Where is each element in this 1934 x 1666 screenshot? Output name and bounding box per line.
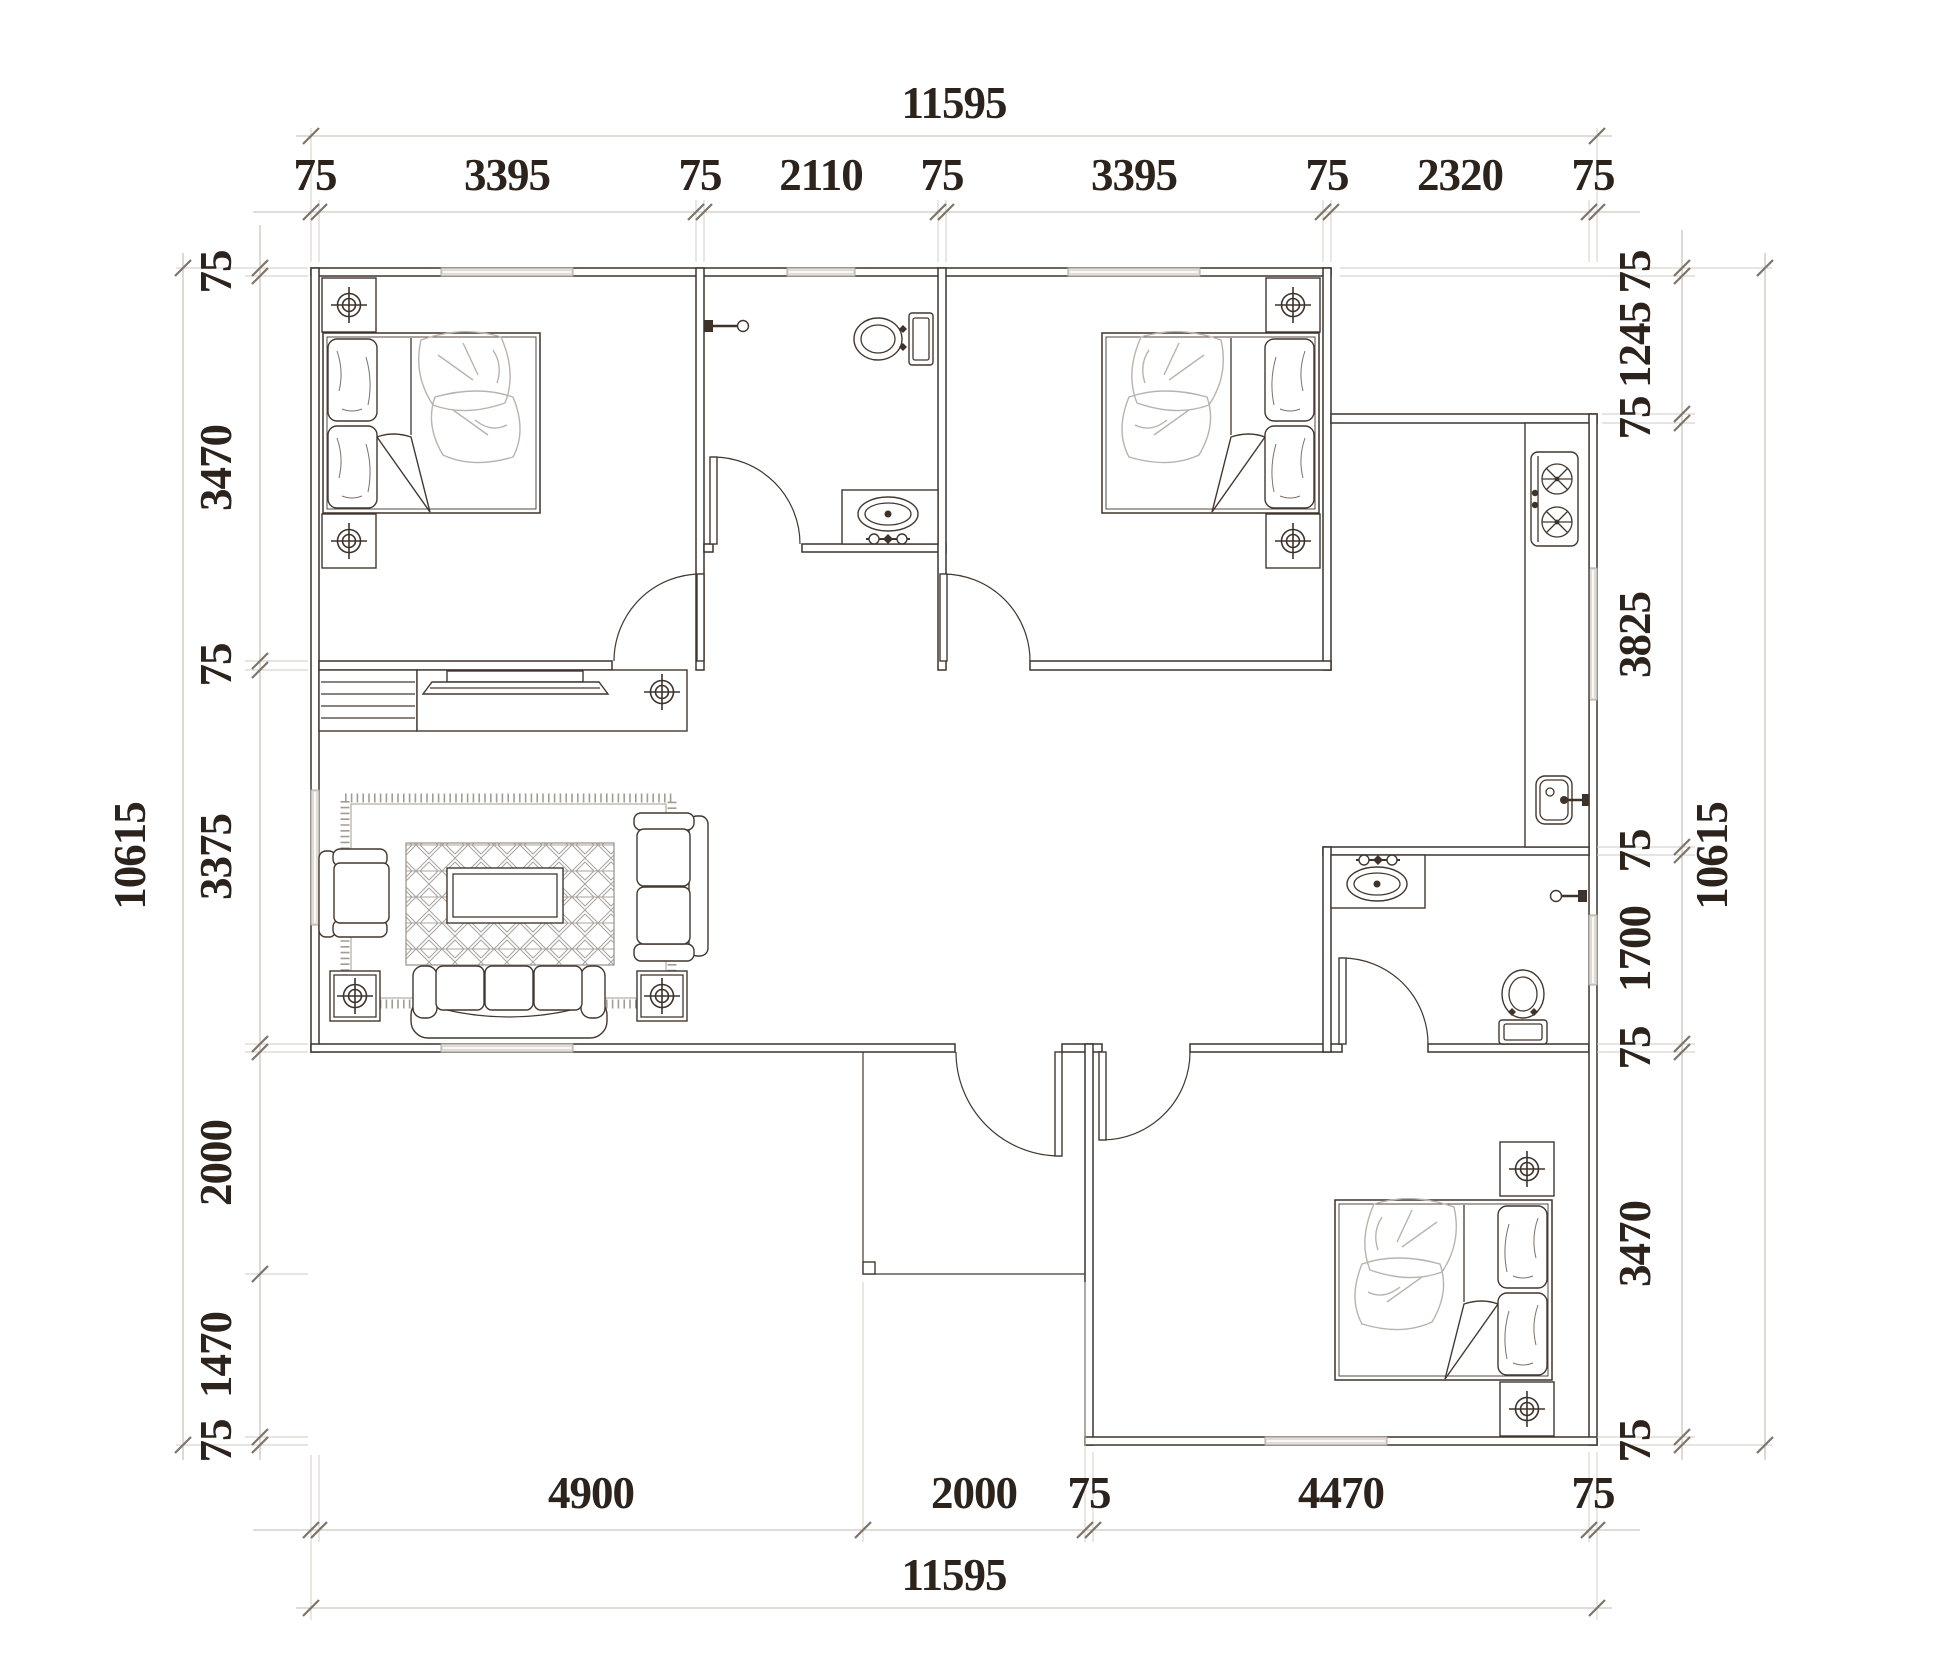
tv-cabinet <box>417 670 687 731</box>
armchair-icon <box>319 849 389 937</box>
nightstand-icon <box>1500 1142 1554 1196</box>
wall-bedroom2-bottom <box>1030 661 1331 670</box>
door-bedroom3 <box>1099 1052 1190 1140</box>
door-bath1 <box>710 457 800 544</box>
dim-right-seg: 75 <box>1610 251 1660 294</box>
dim-top-seg: 75 <box>1306 150 1349 200</box>
dim-left-seg: 1470 <box>191 1312 241 1398</box>
coffee-table <box>447 868 563 923</box>
wall-left <box>311 268 319 1052</box>
wall-bath2-top <box>1323 847 1589 855</box>
dim-left-seg: 2000 <box>191 1120 241 1206</box>
wall-entry-stub <box>1062 1044 1102 1052</box>
wall-kitchen-top <box>1331 414 1597 423</box>
bedroom-top-left <box>322 278 540 568</box>
window-bath1 <box>787 268 855 276</box>
dim-right-seg: 75 <box>1610 397 1660 440</box>
dim-left-seg: 75 <box>191 251 241 294</box>
bathroom-right <box>1331 855 1587 1044</box>
kitchen <box>1525 423 1589 847</box>
dim-left-seg: 75 <box>191 644 241 687</box>
dim-left-seg: 75 <box>191 1420 241 1463</box>
living-room <box>319 670 708 1038</box>
louver-cabinet <box>319 670 417 731</box>
vanity-sink-icon <box>1331 855 1425 908</box>
double-bed-icon <box>1102 332 1319 513</box>
entry-porch <box>863 1052 1085 1274</box>
wall-bedroom2-right <box>1323 268 1331 670</box>
nightstand-icon <box>322 514 376 568</box>
bedroom-top-right <box>1102 278 1320 568</box>
bathroom-top <box>704 313 938 544</box>
dim-top-seg: 2110 <box>779 150 863 200</box>
tv-icon <box>423 671 608 694</box>
dim-right-overall: 10615 <box>1687 802 1737 910</box>
dim-right-seg: 3470 <box>1610 1201 1660 1287</box>
door-bedroom1 <box>614 574 704 661</box>
floor-plan-canvas: 11595 75 3395 75 2110 75 3395 75 2320 75… <box>0 0 1934 1666</box>
towel-bar-icon <box>1551 890 1588 902</box>
dim-top-seg: 75 <box>294 150 337 200</box>
wall-hall-bed3 <box>1190 1044 1342 1052</box>
nightstand-icon <box>1266 514 1320 568</box>
gas-stove-icon <box>1531 452 1578 546</box>
dimension-top: 11595 75 3395 75 2110 75 3395 75 2320 75 <box>253 78 1640 262</box>
dim-left-seg: 3375 <box>191 814 241 900</box>
wall-bath1-bottom <box>802 544 946 552</box>
dim-bottom-seg: 75 <box>1572 1468 1615 1518</box>
dim-right-seg: 1700 <box>1610 906 1660 992</box>
dim-bottom-overall: 11595 <box>901 1550 1006 1600</box>
window-living-left <box>311 790 319 925</box>
wall-bath2-bottom <box>1428 1044 1589 1052</box>
dim-right-seg: 75 <box>1610 1027 1660 1070</box>
dim-top-seg: 3395 <box>464 150 550 200</box>
window-bedroom1 <box>441 268 573 276</box>
window-living-bottom <box>441 1044 573 1052</box>
dim-top-seg: 75 <box>921 150 964 200</box>
dim-right-seg: 1245 <box>1610 302 1660 388</box>
door-entry <box>956 1052 1062 1156</box>
door-bath2 <box>1339 958 1428 1044</box>
vanity-sink-icon <box>842 490 938 544</box>
window-bedroom3 <box>1265 1437 1387 1445</box>
dim-right-seg: 75 <box>1610 1420 1660 1463</box>
dim-top-seg: 3395 <box>1091 150 1177 200</box>
dim-top-seg: 2320 <box>1417 150 1503 200</box>
window-bedroom2 <box>1068 268 1200 276</box>
dim-right-seg: 3825 <box>1610 592 1660 678</box>
dim-bottom-seg: 4900 <box>548 1468 634 1518</box>
dimension-left: 10615 75 3470 75 3375 2000 1470 75 <box>105 225 308 1463</box>
dim-left-overall: 10615 <box>105 802 155 910</box>
side-table-icon <box>637 971 687 1021</box>
window-bath2 <box>1589 915 1597 985</box>
loveseat-icon <box>634 813 708 961</box>
dim-bottom-seg: 2000 <box>931 1468 1017 1518</box>
dim-top-seg: 75 <box>679 150 722 200</box>
toilet-icon <box>1499 970 1547 1044</box>
shower-valve-icon <box>704 320 749 332</box>
dim-left-seg: 3470 <box>191 425 241 511</box>
dim-top-seg: 75 <box>1572 150 1615 200</box>
dim-right-seg: 75 <box>1610 830 1660 873</box>
dim-bottom-seg: 75 <box>1068 1468 1111 1518</box>
wall-bedroom3-left <box>1085 1044 1093 1445</box>
bedroom-bottom-right <box>1335 1142 1554 1436</box>
toilet-icon <box>854 313 933 365</box>
wall-bath2-left <box>1323 847 1331 1052</box>
door-bedroom2 <box>940 574 1030 661</box>
floor-plan-page: 11595 75 3395 75 2110 75 3395 75 2320 75… <box>0 0 1934 1666</box>
sofa-icon <box>411 966 607 1038</box>
wall-living-bottom <box>311 1044 955 1052</box>
dim-top-overall: 11595 <box>901 78 1006 128</box>
porch-corner-post <box>863 1262 875 1274</box>
double-bed-icon <box>1335 1199 1552 1380</box>
nightstand-icon <box>1500 1382 1554 1436</box>
wall-bath1-stub <box>704 544 713 552</box>
side-table-icon <box>330 971 380 1021</box>
window-kitchen <box>1589 568 1597 700</box>
nightstand-icon <box>1266 278 1320 332</box>
wall-bedroom1-bottom <box>319 661 612 670</box>
dim-bottom-seg: 4470 <box>1298 1468 1384 1518</box>
nightstand-icon <box>322 278 376 332</box>
double-bed-icon <box>323 332 540 513</box>
